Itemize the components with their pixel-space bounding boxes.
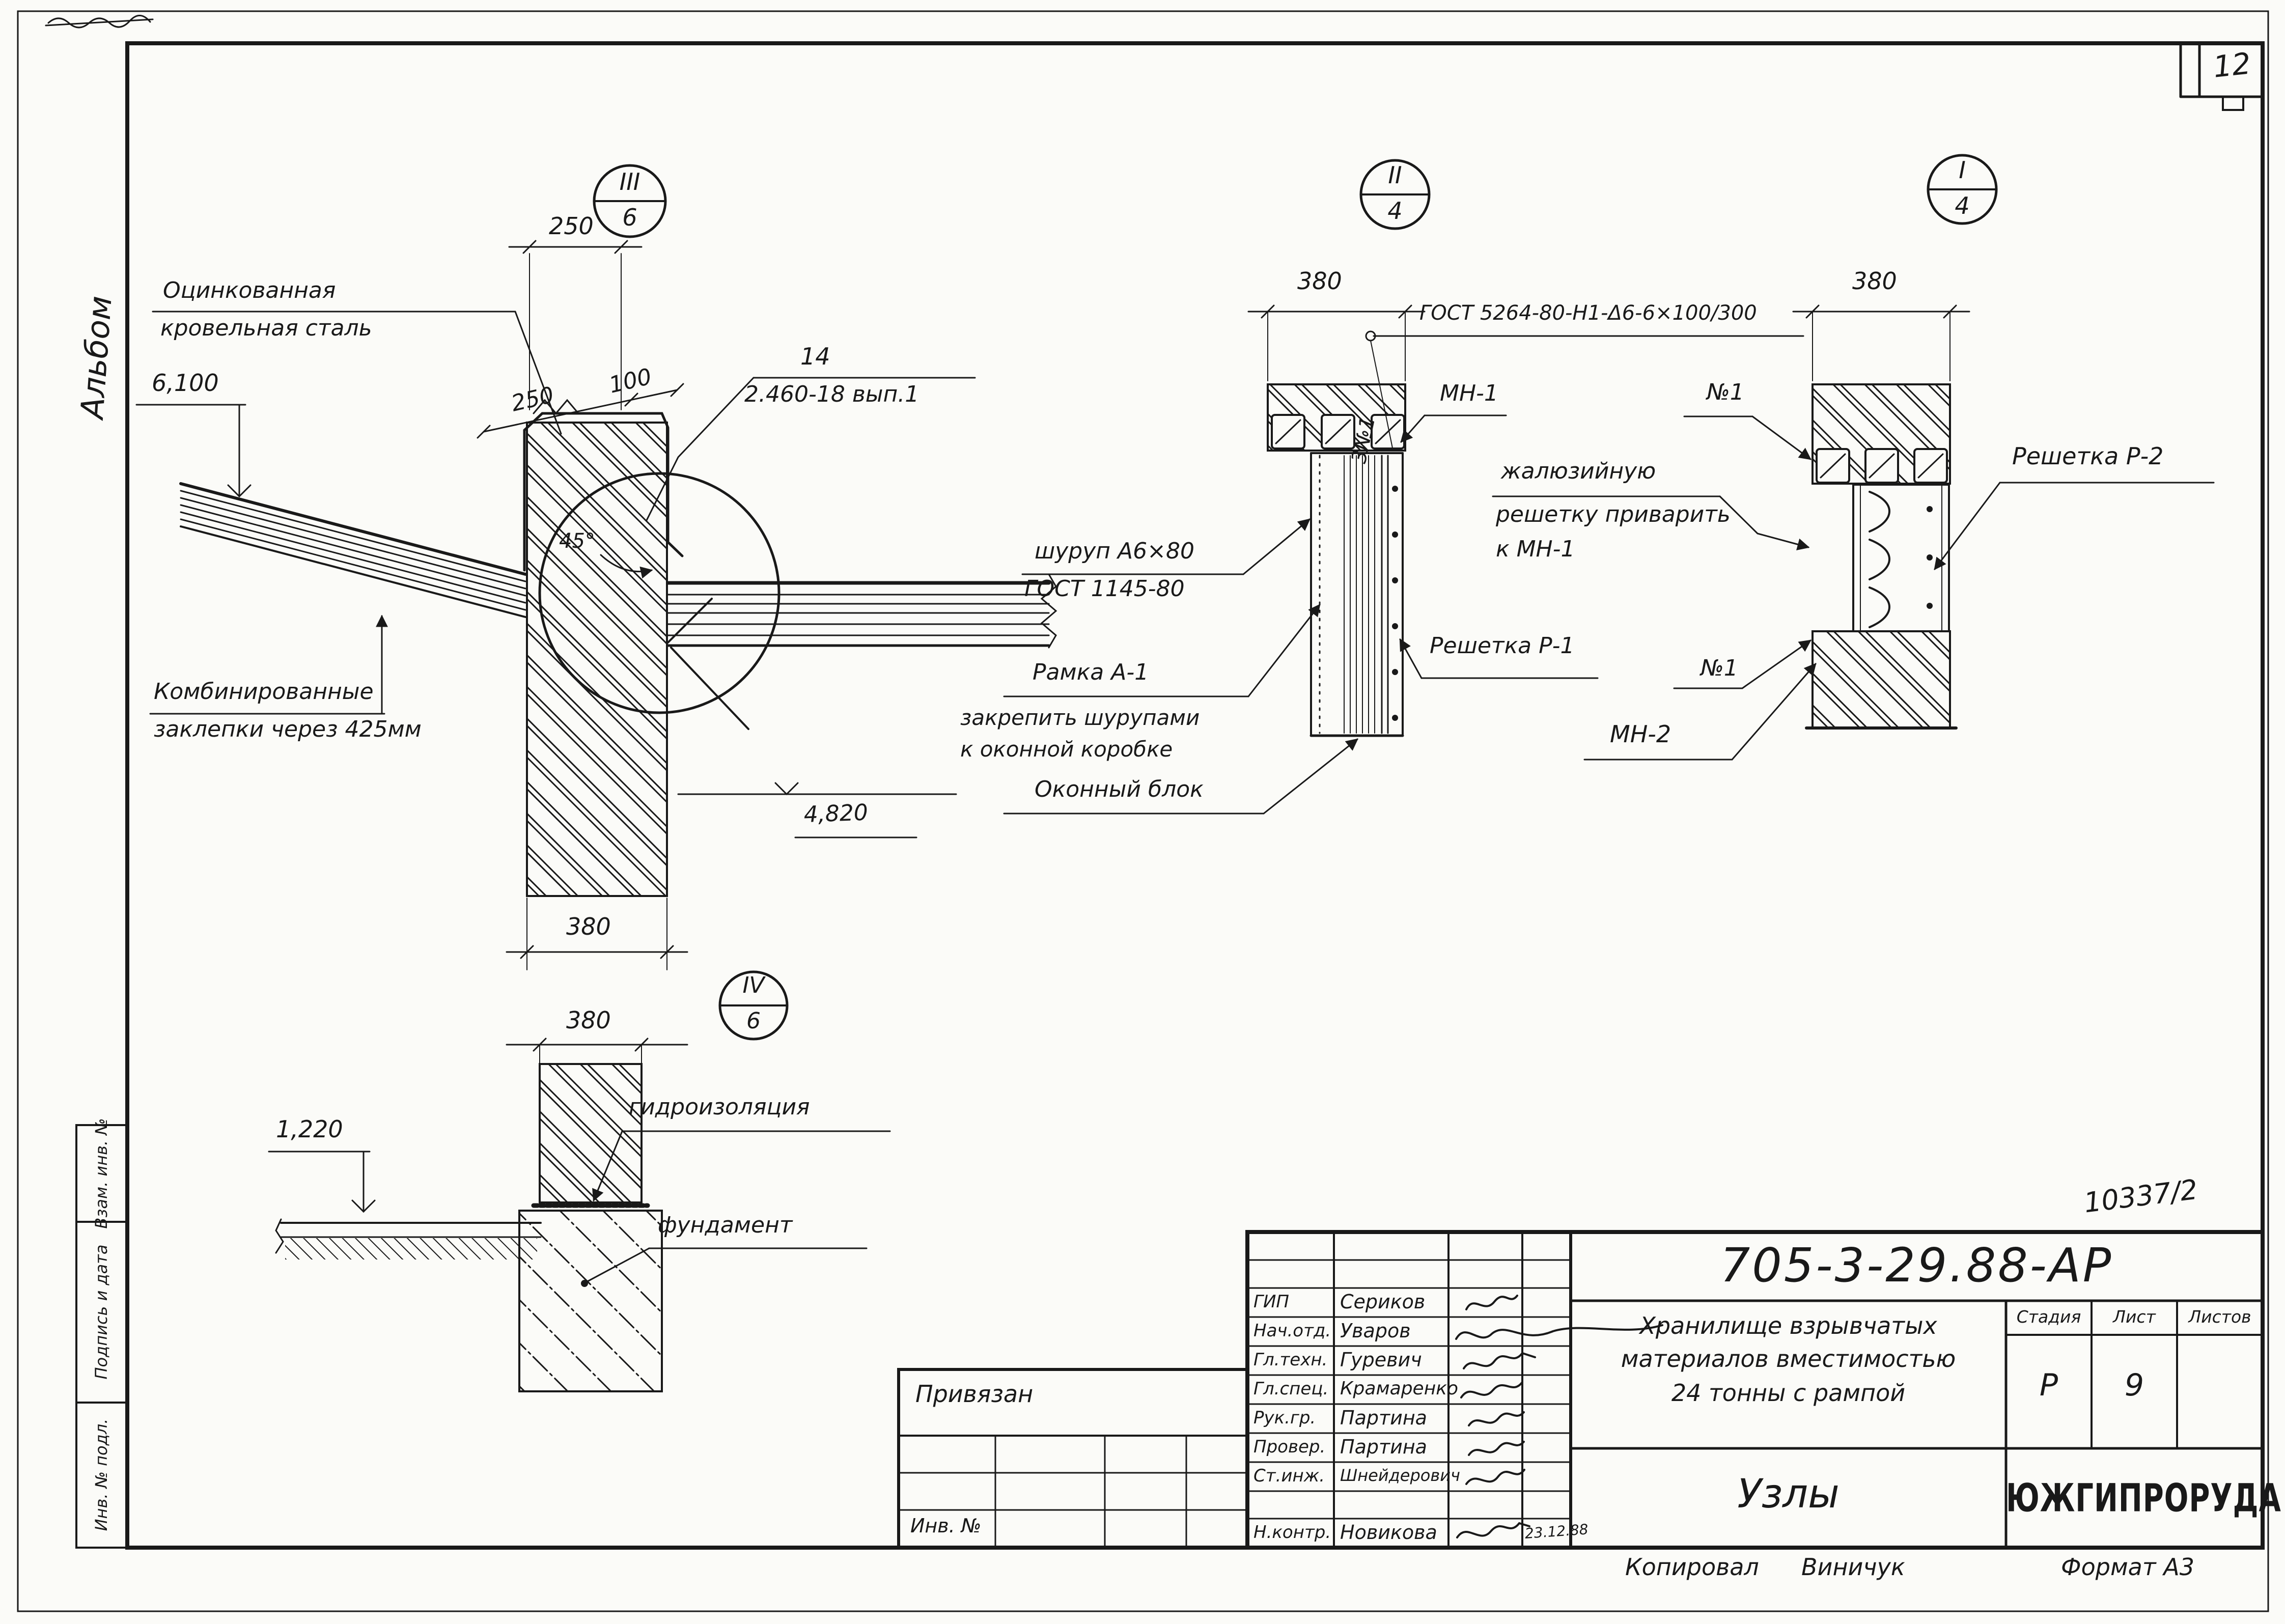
label-frame-fix-1: закрепить шурупами [960, 707, 1200, 729]
tb-name-gltehn: Гуревич [1340, 1350, 1422, 1370]
label-steel-2: кровельная сталь [160, 317, 372, 340]
attach-label: Привязан [915, 1382, 1033, 1406]
format-note: Формат А3 [2061, 1555, 2194, 1579]
attach-inv-label: Инв. № [910, 1516, 981, 1536]
label-frame-a1: Рамка А-1 [1033, 661, 1149, 684]
callout-4-num: IV [723, 974, 784, 997]
label-screw-2: ГОСТ 1145-80 [1024, 577, 1185, 601]
copied-label: Копировал [1625, 1555, 1759, 1579]
callout-2-num: II [1364, 163, 1426, 187]
elev-4820: 4,820 [803, 801, 869, 827]
margin-field-podpis: Подпись и дата [93, 1244, 110, 1379]
label-steel-1: Оцинкованная [163, 279, 336, 302]
detail-4-linework [269, 972, 890, 1391]
label-window-block: Оконный блок [1035, 778, 1204, 801]
project-name-line1: Хранилище взрывчатых [1571, 1313, 2006, 1338]
dim-380-d3: 380 [1852, 269, 1897, 293]
margin-field-inv: Инв. № подл. [93, 1419, 110, 1531]
dim-380-wall2: 380 [566, 1008, 611, 1032]
label-jalousie-3: к МН-1 [1496, 538, 1575, 561]
label-screw-1: шуруп А6×80 [1035, 540, 1194, 563]
label-jalousie-2: решетку приварить [1496, 503, 1731, 526]
dim-380-d2: 380 [1297, 269, 1342, 293]
callout-1-den: 4 [1932, 193, 1993, 218]
callout-1-num: I [1932, 158, 1993, 182]
elev-6100: 6,100 [152, 371, 219, 395]
tb-name-nachotd: Уваров [1340, 1321, 1411, 1341]
tb-name-glspec: Крамаренко [1340, 1379, 1458, 1398]
elev-1220: 1,220 [276, 1117, 343, 1141]
label-gost-weld: ГОСТ 5264-80-Н1-Δ6-6×100/300 [1419, 302, 1757, 324]
dim-380-wall1: 380 [566, 914, 611, 939]
tb-role-nachotd: Нач.отд. [1253, 1322, 1331, 1340]
drawing-sheet: 12 Альбом Взам. инв. № Подпись и дата Ин… [0, 0, 2285, 1624]
org-logo: ЮЖГИПРОРУДА [2006, 1479, 2263, 1519]
project-name-line2: материалов вместимостью [1571, 1347, 2006, 1371]
label-mn2: МН-2 [1610, 722, 1671, 746]
callout-2-den: 4 [1364, 199, 1426, 223]
corner-scribble [48, 15, 150, 27]
tb-role-prover: Провер. [1253, 1438, 1325, 1457]
tb-role-gip: ГИП [1253, 1293, 1289, 1311]
tb-role-stinzh: Ст.инж. [1253, 1467, 1325, 1486]
label-grille-p1: Решетка Р-1 [1430, 634, 1575, 658]
sheets-label: Листов [2177, 1308, 2263, 1326]
album-label: Альбом [75, 295, 117, 419]
label-mn1: МН-1 [1440, 382, 1498, 405]
label-n1-top: №1 [1707, 381, 1744, 404]
sheet-label: Лист [2092, 1308, 2177, 1326]
doc-number: 705-3-29.88-АР [1571, 1241, 2263, 1291]
label-rivets-2: заклепки через 425мм [154, 718, 422, 741]
label-jalousie-1: жалюзийную [1501, 460, 1656, 483]
label-frame-fix-2: к оконной коробке [960, 738, 1173, 761]
dim-250-top: 250 [549, 214, 594, 238]
part-number-14: 14 [800, 344, 830, 369]
tb-name-stinzh: Шнейдерович [1340, 1467, 1460, 1485]
tb-role-rukgr: Рук.гр. [1253, 1409, 1316, 1427]
label-grille-p2: Решетка Р-2 [2012, 444, 2163, 468]
stage-label: Стадия [2006, 1308, 2092, 1326]
page-number: 12 [2212, 48, 2252, 82]
project-name-line3: 24 тонны с рампой [1571, 1381, 2006, 1405]
callout-3-den: 6 [599, 205, 660, 230]
tb-name-nkontr: Новикова [1340, 1523, 1437, 1543]
tb-name-gip: Сериков [1340, 1292, 1425, 1312]
label-rivets-1: Комбинированные [154, 680, 374, 704]
part-ref: 2.460-18 вып.1 [744, 383, 919, 406]
tb-name-rukgr: Партина [1340, 1408, 1427, 1429]
tb-role-glspec: Гл.спец. [1253, 1380, 1328, 1398]
copied-name: Виничук [1801, 1555, 1905, 1579]
tb-name-prover: Партина [1340, 1437, 1427, 1458]
tb-role-nkontr: Н.контр. [1253, 1524, 1331, 1542]
label-waterproofing: гидроизоляция [629, 1096, 810, 1119]
callout-4-den: 6 [723, 1010, 784, 1033]
sheet-title: Узлы [1571, 1474, 2006, 1516]
callout-3-num: III [599, 170, 660, 194]
margin-field-vzam: Взам. инв. № [93, 1118, 110, 1228]
label-foundation: фундамент [658, 1214, 792, 1237]
label-n1-bottom: №1 [1701, 657, 1738, 680]
stage-value: Р [2006, 1369, 2092, 1402]
sheet-value: 9 [2092, 1369, 2177, 1402]
tb-role-gltehn: Гл.техн. [1253, 1351, 1327, 1369]
angle-45: 45° [559, 530, 595, 552]
